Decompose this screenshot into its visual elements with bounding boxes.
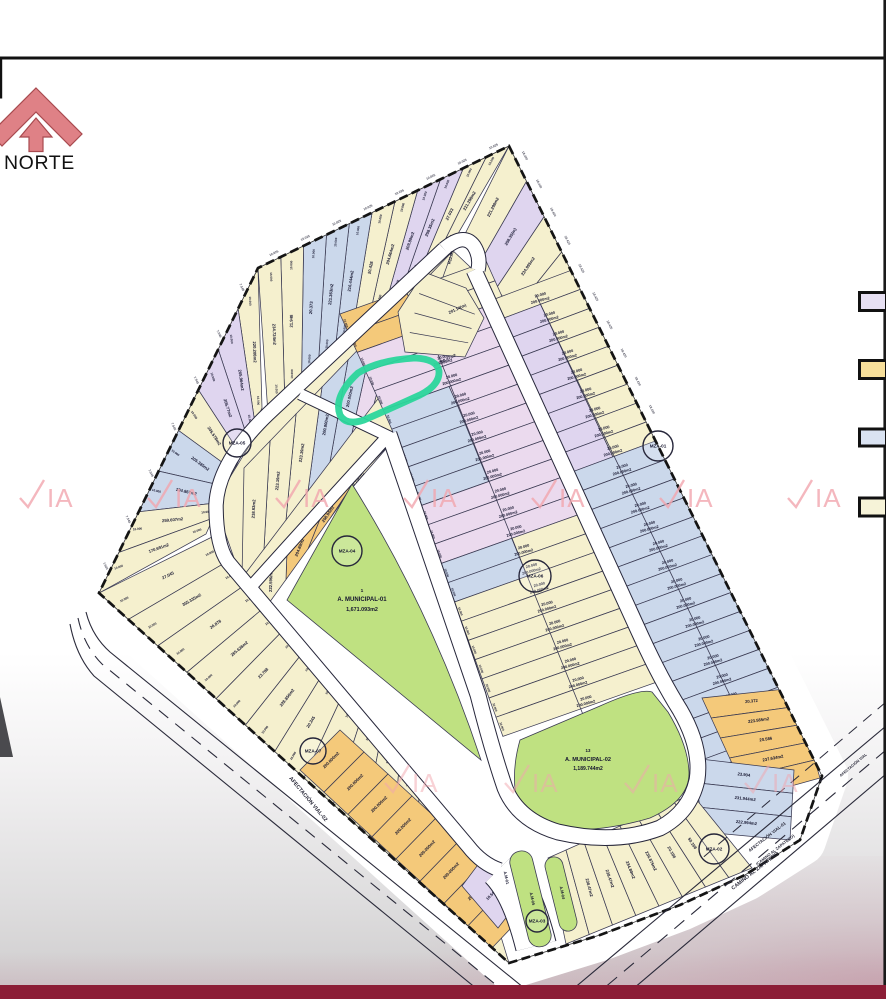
svg-text:MZA-07: MZA-07 [305, 749, 322, 754]
svg-text:13: 13 [586, 748, 591, 753]
svg-text:10.000: 10.000 [289, 260, 293, 270]
svg-text:10.000: 10.000 [269, 272, 273, 282]
svg-text:A. MUNICIPAL-01: A. MUNICIPAL-01 [337, 597, 387, 603]
svg-text:MZA-04: MZA-04 [339, 549, 356, 554]
svg-text:MZA-05: MZA-05 [229, 441, 246, 446]
svg-text:IA: IA [412, 768, 439, 798]
svg-text:21.948: 21.948 [289, 314, 294, 328]
svg-text:218.63m2: 218.63m2 [251, 499, 257, 519]
svg-text:1: 1 [361, 588, 364, 594]
svg-text:MZA-03: MZA-03 [529, 919, 546, 924]
svg-text:MZA-06: MZA-06 [527, 574, 544, 579]
svg-text:1,189.744m2: 1,189.744m2 [573, 766, 603, 772]
svg-text:IA: IA [303, 483, 330, 513]
svg-text:10.000: 10.000 [256, 396, 260, 406]
svg-text:220.208m2: 220.208m2 [252, 341, 258, 363]
svg-text:IA: IA [559, 483, 586, 513]
svg-text:IA: IA [532, 768, 559, 798]
svg-text:IA: IA [687, 483, 714, 513]
svg-text:MZA-02: MZA-02 [706, 847, 723, 852]
svg-text:10.000: 10.000 [307, 354, 312, 364]
svg-text:IA: IA [652, 768, 679, 798]
svg-text:10.000: 10.000 [311, 249, 316, 259]
svg-text:IA: IA [431, 483, 458, 513]
svg-text:IA: IA [47, 483, 74, 513]
svg-text:IA: IA [815, 483, 842, 513]
svg-text:10.000: 10.000 [290, 369, 294, 379]
svg-text:10.000: 10.000 [248, 296, 252, 306]
svg-text:A. MUNICIPAL-02: A. MUNICIPAL-02 [565, 757, 611, 763]
svg-text:234.724m2: 234.724m2 [272, 324, 278, 346]
svg-text:IA: IA [772, 768, 799, 798]
svg-text:NORTE: NORTE [4, 152, 75, 174]
svg-text:20.373: 20.373 [308, 300, 314, 314]
svg-text:10.000: 10.000 [274, 384, 278, 394]
svg-text:1,671.093m2: 1,671.093m2 [346, 607, 378, 613]
svg-text:IA: IA [175, 483, 202, 513]
